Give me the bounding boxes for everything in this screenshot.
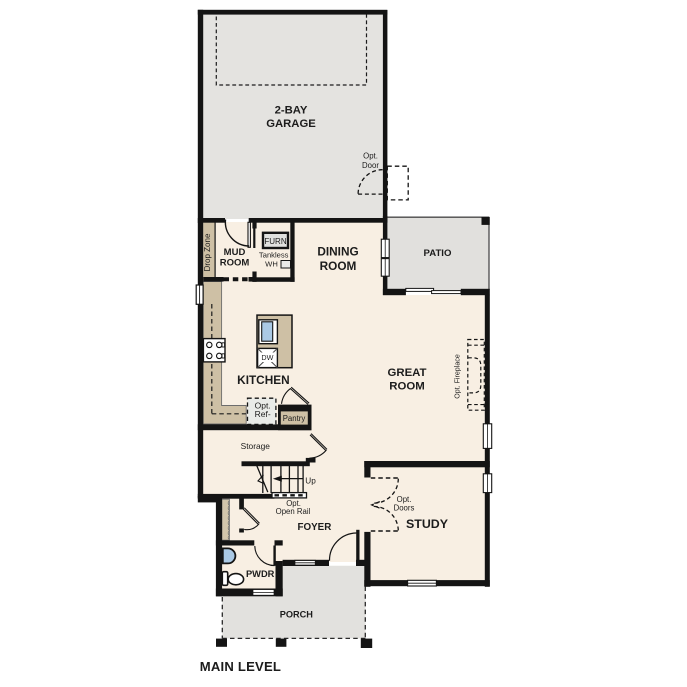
svg-text:Door: Door: [362, 161, 379, 170]
svg-text:PORCH: PORCH: [280, 610, 314, 620]
svg-text:ROOM: ROOM: [389, 381, 424, 393]
svg-text:Open Rail: Open Rail: [276, 507, 311, 516]
svg-text:FOYER: FOYER: [298, 522, 332, 533]
svg-text:Opt.: Opt.: [397, 495, 412, 504]
svg-text:Drop Zone: Drop Zone: [203, 233, 212, 271]
svg-text:DINING: DINING: [317, 245, 358, 259]
svg-text:GREAT: GREAT: [387, 367, 426, 379]
svg-text:STUDY: STUDY: [406, 517, 449, 531]
svg-text:Pantry: Pantry: [283, 414, 306, 423]
svg-text:KITCHEN: KITCHEN: [237, 373, 289, 387]
svg-text:PATIO: PATIO: [424, 248, 452, 259]
svg-text:Doors: Doors: [394, 504, 415, 513]
svg-text:GARAGE: GARAGE: [266, 118, 316, 130]
svg-text:Opt. Fireplace: Opt. Fireplace: [454, 354, 462, 399]
svg-text:Storage: Storage: [241, 441, 271, 451]
svg-text:WH: WH: [265, 259, 278, 268]
svg-text:Opt.: Opt.: [363, 152, 378, 161]
svg-text:DW: DW: [261, 353, 273, 362]
svg-text:FURN: FURN: [264, 237, 286, 246]
svg-text:Up: Up: [305, 476, 316, 485]
svg-text:ROOM: ROOM: [220, 257, 250, 268]
svg-text:Ref-: Ref-: [255, 409, 271, 419]
svg-text:Tankless: Tankless: [259, 251, 289, 260]
svg-text:MAIN LEVEL: MAIN LEVEL: [200, 659, 281, 674]
svg-text:2-BAY: 2-BAY: [275, 104, 308, 116]
svg-text:ROOM: ROOM: [320, 259, 357, 273]
svg-text:PWDR: PWDR: [246, 569, 275, 579]
